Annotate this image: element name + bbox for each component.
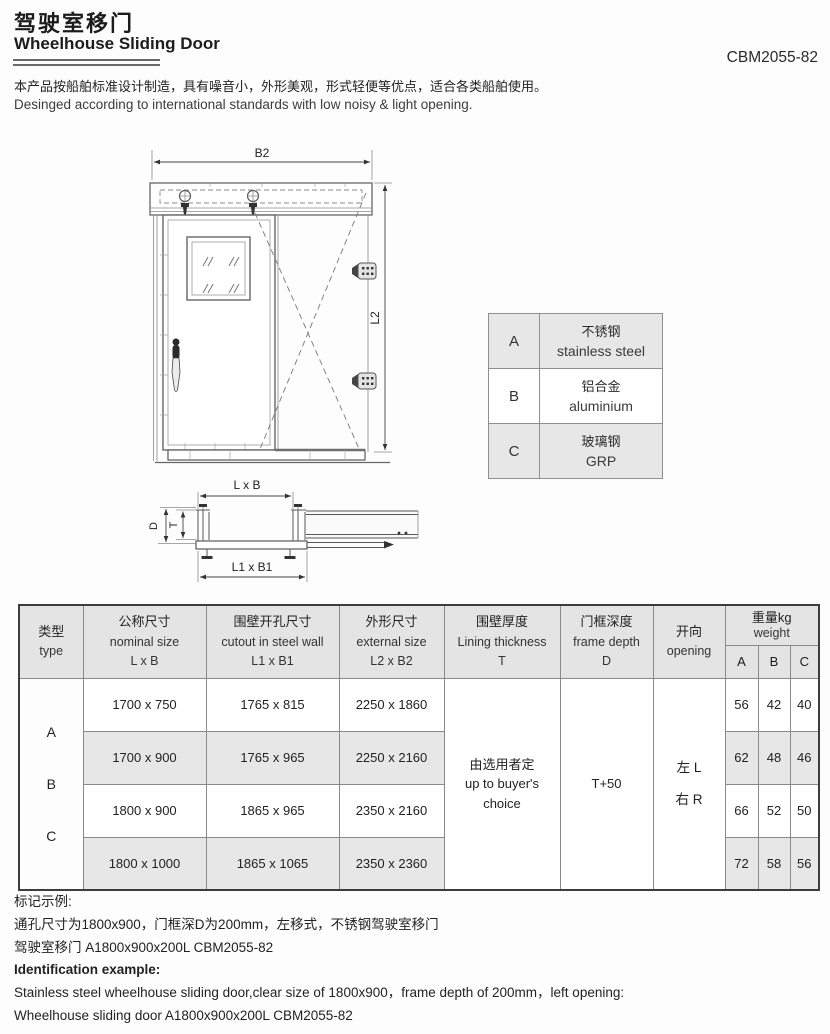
weight-c-value: 40 bbox=[790, 678, 819, 731]
dim-label-l2: L2 bbox=[368, 311, 382, 325]
weight-a-value: 66 bbox=[725, 784, 758, 837]
nominal-size-value: 1700 x 750 bbox=[83, 678, 206, 731]
identification-example: 标记示例: 通孔尺寸为1800x900，门框深D为200mm，左移式，不锈钢驾驶… bbox=[14, 891, 624, 1028]
example-en-title: Identification example: bbox=[14, 959, 624, 982]
example-en-line2: Wheelhouse sliding door A1800x900x200L C… bbox=[14, 1005, 624, 1028]
catalog-page: 驾驶室移门 Wheelhouse Sliding Door CBM2055-82… bbox=[0, 0, 830, 1034]
example-zh-title: 标记示例: bbox=[14, 891, 624, 914]
material-key: A bbox=[489, 314, 540, 369]
header-frame-depth: 门框深度 frame depth D bbox=[560, 605, 653, 678]
external-size-value: 2250 x 1860 bbox=[339, 678, 444, 731]
type-b: B bbox=[47, 776, 56, 792]
external-size-value: 2350 x 2360 bbox=[339, 837, 444, 890]
cutout-value: 1865 x 965 bbox=[206, 784, 339, 837]
dim-label-b2: B2 bbox=[255, 146, 270, 160]
frame-depth-cell: T+50 bbox=[560, 678, 653, 890]
page-title-en: Wheelhouse Sliding Door bbox=[14, 34, 220, 54]
dim-label-d: D bbox=[148, 522, 160, 530]
description-en: Desinged according to international stan… bbox=[14, 97, 473, 112]
material-name-en: GRP bbox=[540, 452, 662, 470]
guide-clip bbox=[352, 373, 376, 389]
example-zh-line1: 通孔尺寸为1800x900，门框深D为200mm，左移式，不锈钢驾驶室移门 bbox=[14, 914, 624, 937]
specification-table: 类型 type 公称尺寸 nominal size L x B 围壁开孔尺寸 c… bbox=[18, 604, 820, 891]
header-type: 类型 type bbox=[19, 605, 83, 678]
material-name-zh: 不锈钢 bbox=[540, 322, 662, 342]
material-row-b: B 铝合金 aluminium bbox=[489, 369, 663, 424]
cutout-value: 1765 x 815 bbox=[206, 678, 339, 731]
material-name-en: stainless steel bbox=[540, 342, 662, 360]
weight-c-value: 46 bbox=[790, 731, 819, 784]
header-opening: 开向 opening bbox=[653, 605, 725, 678]
section-view: L x B D bbox=[148, 478, 418, 582]
cutout-value: 1865 x 1065 bbox=[206, 837, 339, 890]
weight-b-value: 58 bbox=[758, 837, 790, 890]
header-nominal-size: 公称尺寸 nominal size L x B bbox=[83, 605, 206, 678]
description-zh: 本产品按船舶标准设计制造，具有噪音小，外形美观，形式轻便等优点，适合各类船舶使用… bbox=[14, 76, 547, 95]
weight-b-value: 52 bbox=[758, 784, 790, 837]
dim-label-lxb: L x B bbox=[234, 478, 261, 492]
wall-plate bbox=[306, 511, 418, 538]
type-a: A bbox=[47, 724, 56, 740]
front-view: B2 bbox=[150, 146, 392, 463]
type-c: C bbox=[46, 828, 56, 844]
external-size-value: 2350 x 2160 bbox=[339, 784, 444, 837]
weight-a-value: 72 bbox=[725, 837, 758, 890]
dim-label-t: T bbox=[168, 521, 180, 528]
cutout-value: 1765 x 965 bbox=[206, 731, 339, 784]
weight-b-value: 48 bbox=[758, 731, 790, 784]
weight-b-value: 42 bbox=[758, 678, 790, 731]
opening-cell: 左 L 右 R bbox=[653, 678, 725, 890]
spec-header-row: 类型 type 公称尺寸 nominal size L x B 围壁开孔尺寸 c… bbox=[19, 605, 819, 645]
material-legend-table: A 不锈钢 stainless steel B 铝合金 aluminium C … bbox=[488, 313, 663, 479]
material-name-zh: 玻璃钢 bbox=[540, 432, 662, 452]
title-underline bbox=[13, 59, 160, 66]
opening-right: 右 R bbox=[676, 793, 703, 807]
example-en-line1: Stainless steel wheelhouse sliding door,… bbox=[14, 982, 624, 1005]
external-size-value: 2250 x 2160 bbox=[339, 731, 444, 784]
header-weight-b: B bbox=[758, 645, 790, 678]
header-weight-a: A bbox=[725, 645, 758, 678]
lining-thickness-cell: 由选用者定 up to buyer's choice bbox=[444, 678, 560, 890]
weight-a-value: 62 bbox=[725, 731, 758, 784]
model-number: CBM2055-82 bbox=[727, 49, 818, 67]
header-lining-thickness: 围壁厚度 Lining thickness T bbox=[444, 605, 560, 678]
weight-a-value: 56 bbox=[725, 678, 758, 731]
type-cell: A B C bbox=[19, 678, 83, 890]
material-key: C bbox=[489, 424, 540, 479]
material-key: B bbox=[489, 369, 540, 424]
nominal-size-value: 1800 x 1000 bbox=[83, 837, 206, 890]
door-sill bbox=[168, 450, 365, 460]
header-external-size: 外形尺寸 external size L2 x B2 bbox=[339, 605, 444, 678]
material-name-zh: 铝合金 bbox=[540, 377, 662, 397]
nominal-size-value: 1800 x 900 bbox=[83, 784, 206, 837]
header-weight: 重量kg weight bbox=[725, 605, 819, 645]
example-zh-line2: 驾驶室移门 A1800x900x200L CBM2055-82 bbox=[14, 937, 624, 960]
nominal-size-value: 1700 x 900 bbox=[83, 731, 206, 784]
spec-row-1: A B C 1700 x 750 1765 x 815 2250 x 1860 … bbox=[19, 678, 819, 731]
weight-c-value: 50 bbox=[790, 784, 819, 837]
weight-c-value: 56 bbox=[790, 837, 819, 890]
opening-left: 左 L bbox=[677, 761, 702, 775]
material-name-en: aluminium bbox=[540, 397, 662, 415]
material-row-c: C 玻璃钢 GRP bbox=[489, 424, 663, 479]
header-cutout: 围壁开孔尺寸 cutout in steel wall L1 x B1 bbox=[206, 605, 339, 678]
material-row-a: A 不锈钢 stainless steel bbox=[489, 314, 663, 369]
door-window bbox=[187, 237, 250, 300]
technical-drawing: B2 bbox=[140, 142, 420, 600]
header-weight-c: C bbox=[790, 645, 819, 678]
dim-label-l1xb1: L1 x B1 bbox=[232, 560, 273, 574]
guide-clip bbox=[352, 263, 376, 279]
